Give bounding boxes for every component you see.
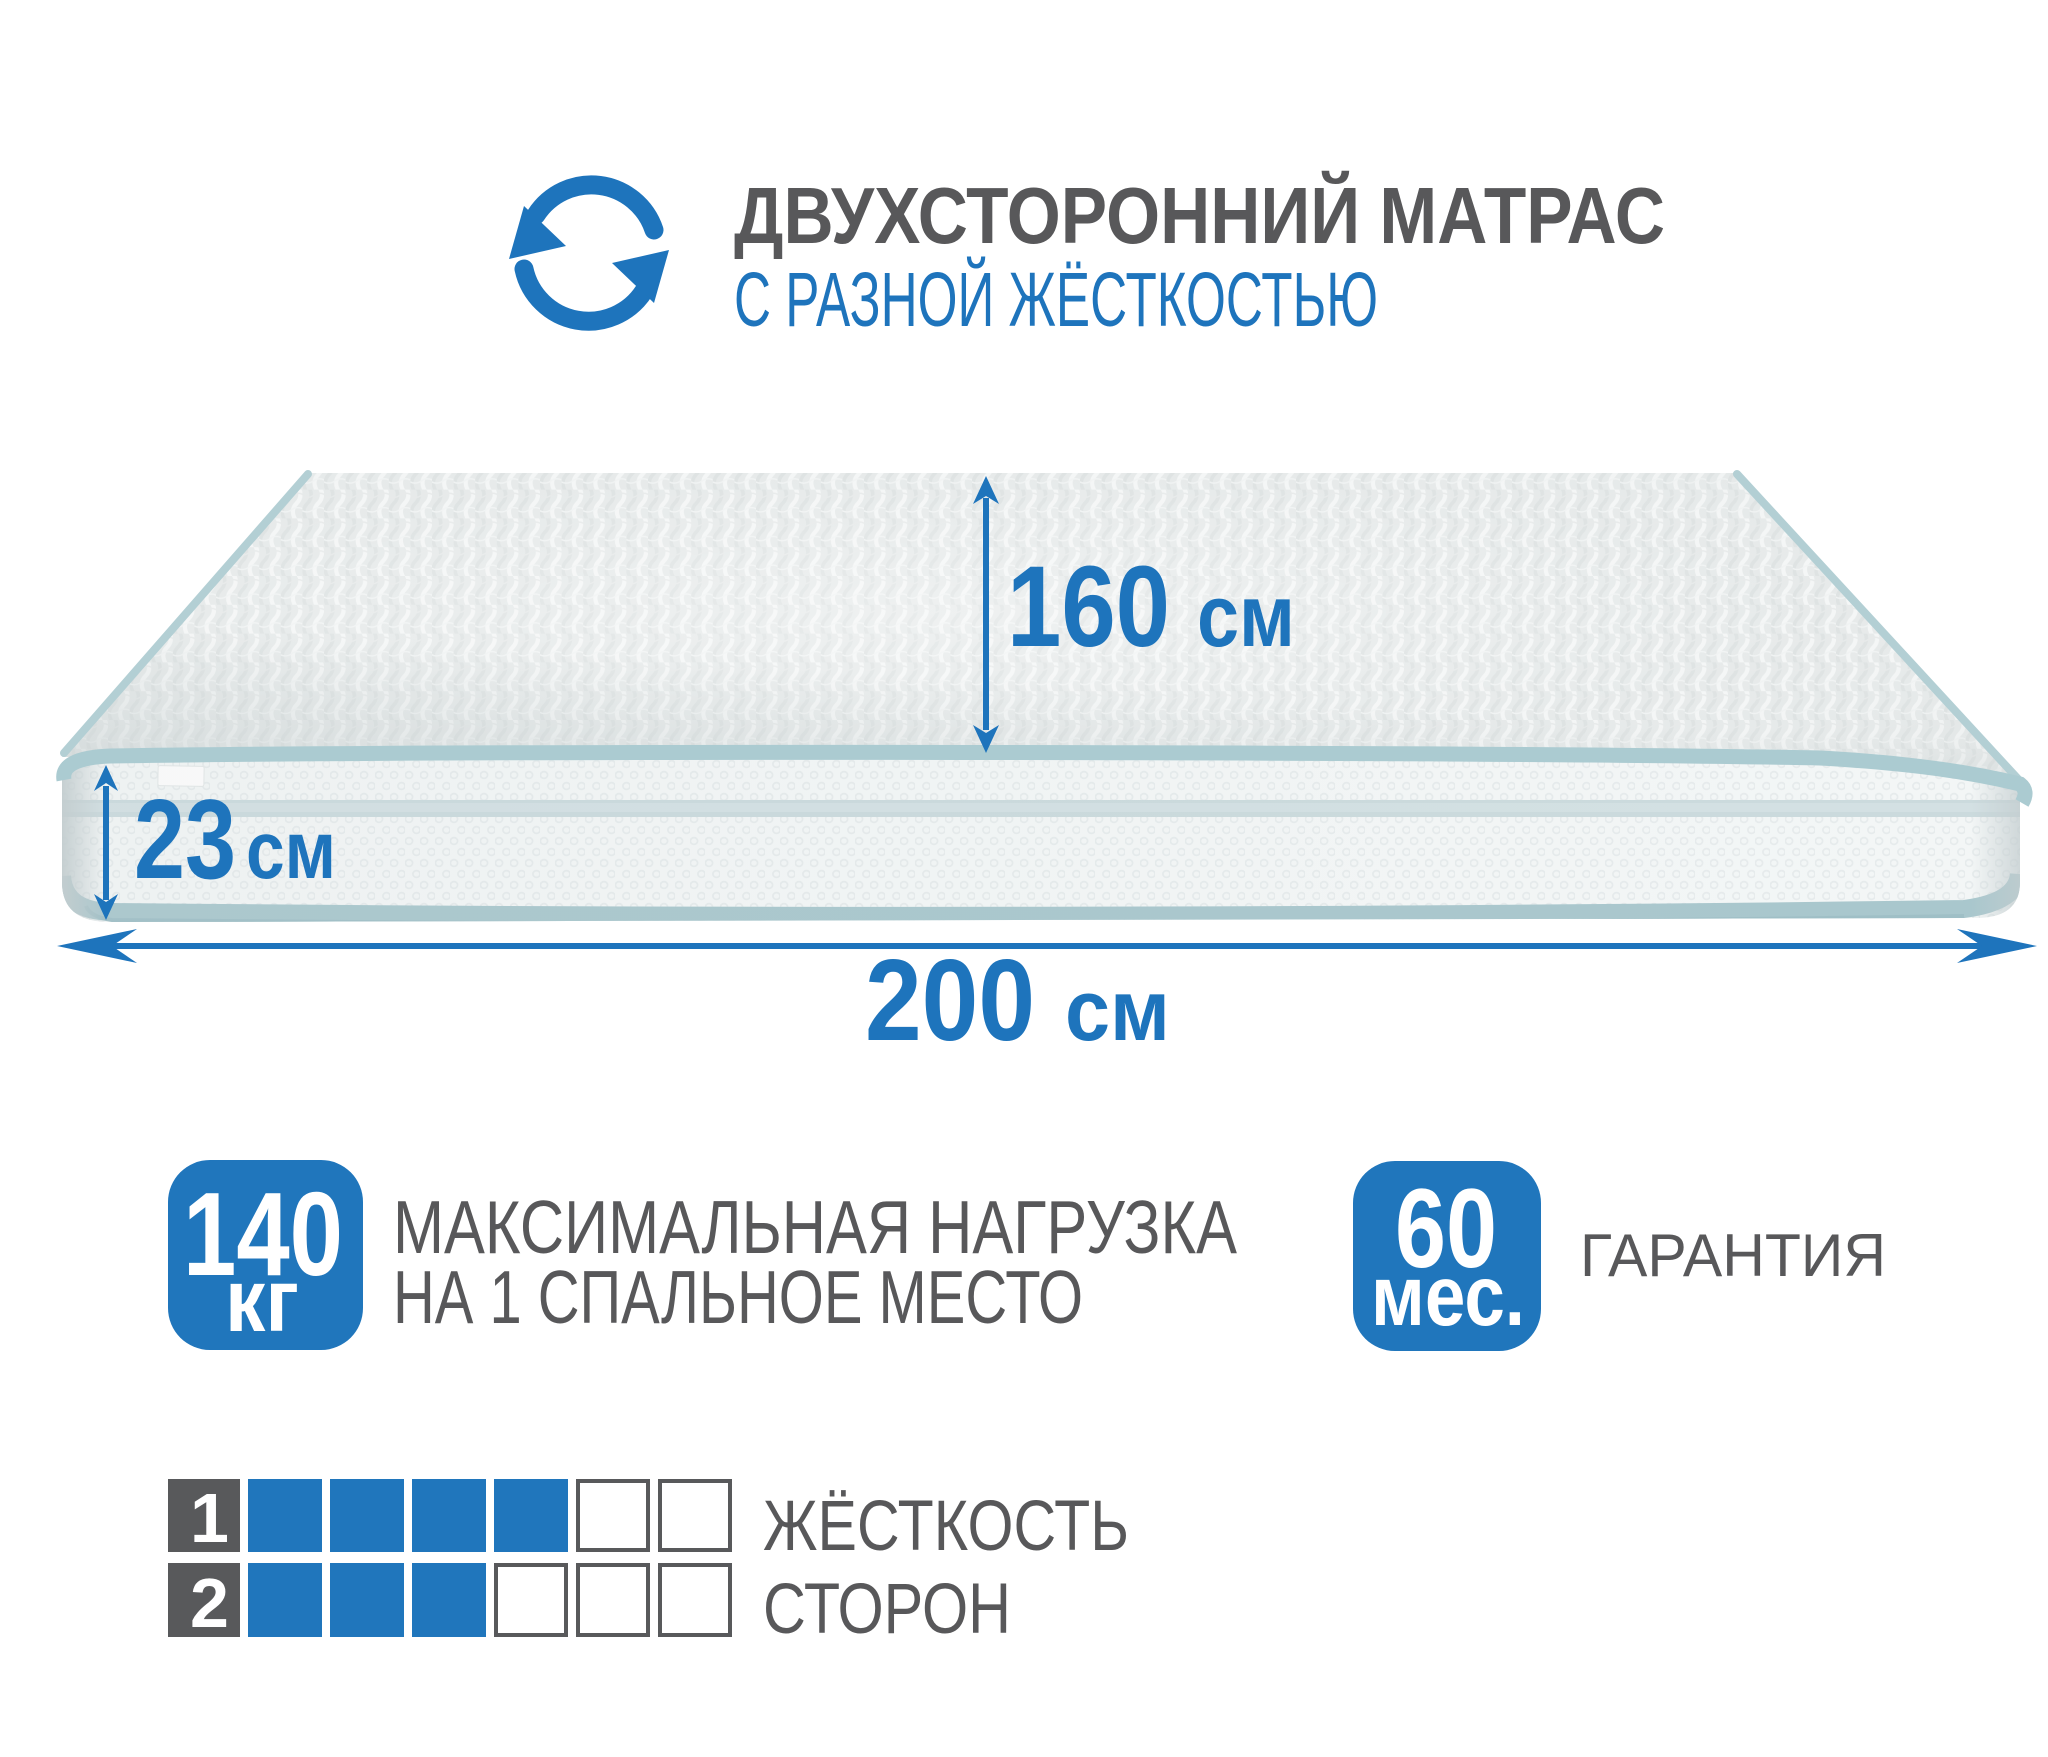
svg-text:НА 1 СПАЛЬНОЕ МЕСТО: НА 1 СПАЛЬНОЕ МЕСТО xyxy=(393,1255,1083,1339)
svg-text:1: 1 xyxy=(190,1479,229,1557)
svg-text:ГАРАНТИЯ: ГАРАНТИЯ xyxy=(1580,1222,1886,1289)
svg-text:ДВУХСТОРОННИЙ МАТРАС: ДВУХСТОРОННИЙ МАТРАС xyxy=(734,170,1665,260)
svg-text:С РАЗНОЙ ЖЁСТКОСТЬЮ: С РАЗНОЙ ЖЁСТКОСТЬЮ xyxy=(734,256,1378,343)
svg-text:кг: кг xyxy=(225,1250,299,1350)
svg-text:см: см xyxy=(1197,566,1295,665)
svg-text:23: 23 xyxy=(134,776,236,902)
svg-text:200: 200 xyxy=(865,935,1035,1065)
svg-text:ЖЁСТКОСТЬ: ЖЁСТКОСТЬ xyxy=(763,1487,1129,1566)
svg-text:см: см xyxy=(246,805,336,896)
svg-text:2: 2 xyxy=(190,1564,229,1642)
svg-text:160: 160 xyxy=(1007,543,1170,671)
svg-text:см: см xyxy=(1065,963,1170,1059)
svg-text:мес.: мес. xyxy=(1371,1249,1525,1344)
svg-text:СТОРОН: СТОРОН xyxy=(763,1570,1011,1649)
